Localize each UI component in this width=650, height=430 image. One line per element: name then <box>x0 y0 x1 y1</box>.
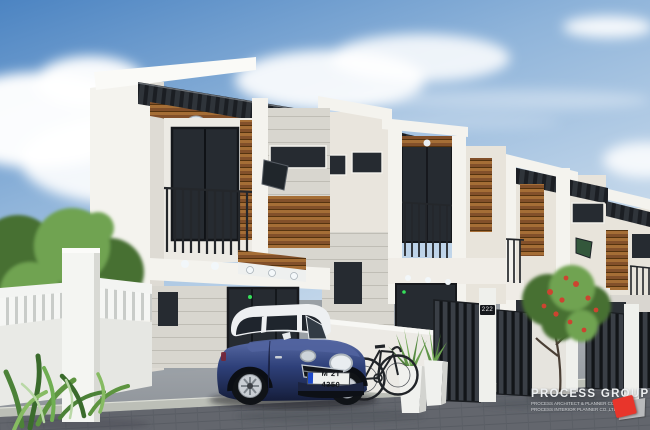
fence-base-wall-2 <box>100 318 152 396</box>
unit1-ground-window <box>158 292 178 326</box>
unit1-door-led <box>248 295 252 299</box>
architectural-rendering: M 2T 4350 222 PROCESS GROUP PROCESS ARCH… <box>0 0 650 430</box>
unit4-wood-panel <box>604 230 628 290</box>
car-taillight <box>221 352 226 361</box>
unit2-small-window-2 <box>352 152 382 173</box>
unit4-window <box>632 234 650 258</box>
unit2-ground-window <box>334 262 362 304</box>
unit2-door-led <box>402 290 406 294</box>
unit2-downlight <box>424 140 431 147</box>
fence-pier-cap <box>62 248 100 253</box>
folding-gate-2 <box>497 310 532 396</box>
scene-canvas <box>0 0 650 430</box>
unit3-clerestory-window <box>572 203 604 223</box>
process-logo <box>611 396 650 423</box>
unit1-pier-right <box>252 98 268 276</box>
folding-gate-4 <box>639 312 650 388</box>
car-door-handle <box>275 356 282 359</box>
unit2-wood-panel <box>470 158 492 232</box>
house-number-plaque: 222 <box>480 305 495 315</box>
unit3-wood-panel <box>520 184 544 256</box>
license-plate-text: M 2T 4350 <box>313 367 349 390</box>
license-plate: M 2T 4350 <box>307 372 350 386</box>
car-headlight-inner <box>301 351 316 362</box>
unit1-wood-band <box>268 196 330 248</box>
planter-box-2 <box>424 360 443 406</box>
